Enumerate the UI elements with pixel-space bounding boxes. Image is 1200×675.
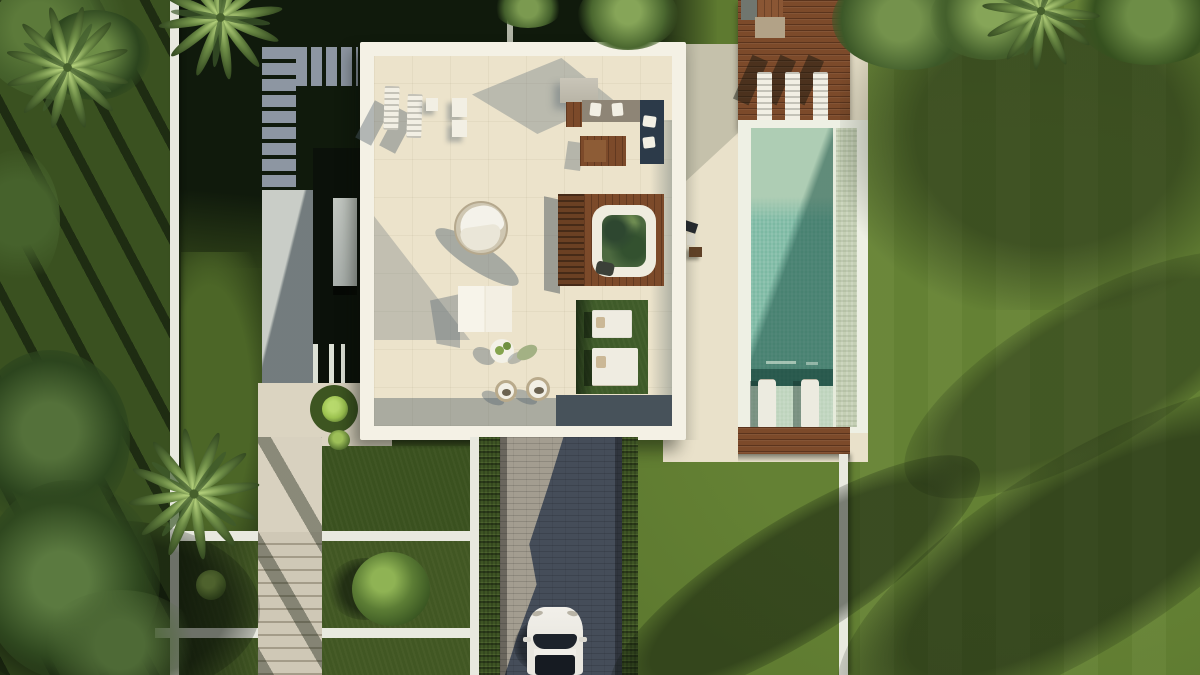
deck-wooden-bench [757, 0, 783, 17]
potted-plant [503, 342, 511, 350]
courtyard-divider [313, 344, 318, 388]
deck-sun-lounger [757, 72, 772, 122]
deck-bottom-shadow [738, 454, 850, 462]
car-mirror [523, 637, 531, 642]
egg-chair-seam [534, 387, 544, 394]
palm-tree-topright [977, 0, 1105, 75]
garden-bush-small [328, 430, 350, 450]
sofa-pillow [642, 136, 655, 148]
roof-side-table [426, 98, 438, 111]
in-pool-lounger [758, 379, 776, 427]
courtyard-divider [341, 344, 345, 388]
walkway-shadow [262, 190, 313, 386]
wooden-deck-bottom [738, 427, 850, 454]
garden-wall-b [322, 628, 472, 638]
deck-beige-mat [755, 17, 785, 38]
slab-shadow [333, 286, 357, 295]
jacuzzi-water [602, 215, 646, 267]
in-pool-lounger [801, 379, 819, 427]
stepping-stones-row [296, 47, 358, 86]
pool-lane-mark [766, 361, 796, 364]
courtyard-divider [329, 344, 334, 388]
deck-sun-lounger [785, 72, 800, 122]
garden-wall-a [322, 531, 472, 541]
garden-tree [352, 552, 430, 626]
roof-sun-lounger [383, 86, 400, 130]
parcel-upper [322, 446, 470, 531]
jacuzzi-slat-side [558, 194, 586, 286]
patch-lounger-pillow [596, 317, 605, 328]
poolside-towel [687, 234, 695, 245]
roof-void-dark [556, 395, 672, 426]
roof-cushion-pad [452, 120, 467, 137]
deck-sun-lounger [813, 72, 828, 122]
aerial-villa-scene [0, 0, 1200, 675]
sofa-pillow [611, 103, 623, 117]
patch-lounger-pillow [596, 356, 606, 368]
hedge-left [479, 437, 500, 675]
sofa-pillow [589, 102, 601, 116]
coffee-table-tier [584, 140, 606, 162]
sofa-side-table [566, 102, 582, 127]
egg-chair-seam [502, 389, 511, 396]
hedge-shadow [500, 437, 507, 675]
hedge-shadow [615, 437, 622, 675]
poolside-stool [689, 247, 702, 257]
square-canopy [458, 286, 512, 332]
pool-lane-mark [806, 362, 818, 365]
car-mirror [579, 637, 587, 642]
sofa-navy-section [640, 100, 664, 164]
car-sunroof [535, 655, 575, 675]
roof-cushion-pad [452, 98, 467, 117]
car-windshield [533, 634, 577, 649]
round-bush [322, 396, 348, 422]
roof-sun-lounger [406, 94, 423, 138]
sofa-pillow [642, 115, 656, 128]
courtyard-wall-slab [333, 198, 357, 286]
